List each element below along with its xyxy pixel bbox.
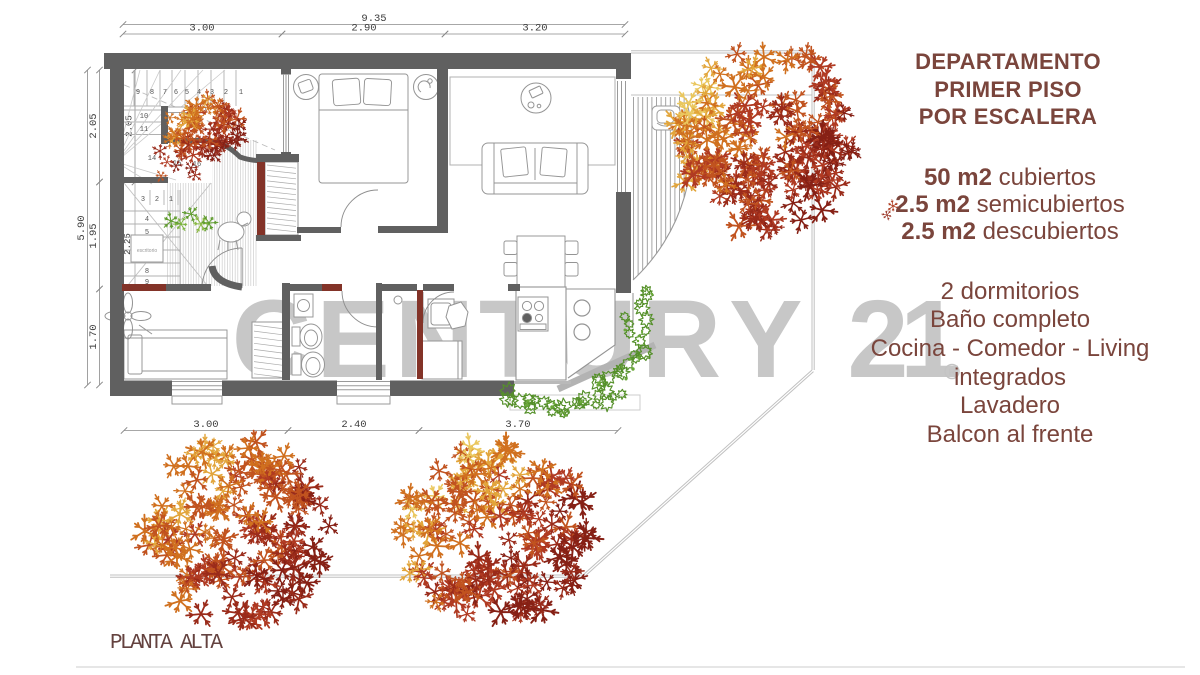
svg-text:4: 4	[197, 89, 201, 97]
svg-text:3.00: 3.00	[189, 23, 214, 35]
svg-text:5.90: 5.90	[76, 215, 88, 240]
svg-text:3.00: 3.00	[193, 419, 218, 431]
svg-text:3: 3	[141, 196, 145, 204]
svg-text:10: 10	[140, 113, 148, 121]
svg-text:7: 7	[163, 89, 167, 97]
svg-text:1: 1	[169, 196, 173, 204]
svg-text:2: 2	[224, 89, 228, 97]
svg-text:4: 4	[145, 216, 149, 224]
svg-text:2: 2	[155, 196, 159, 204]
svg-text:9: 9	[136, 89, 140, 97]
svg-text:2.05: 2.05	[88, 113, 100, 138]
svg-text:2.40: 2.40	[341, 419, 366, 431]
svg-text:PLANTA ALTA: PLANTA ALTA	[110, 632, 223, 655]
svg-text:6: 6	[174, 89, 178, 97]
svg-text:5: 5	[185, 89, 189, 97]
svg-text:8: 8	[145, 268, 149, 276]
svg-text:escritorio: escritorio	[137, 248, 158, 254]
svg-text:3.70: 3.70	[505, 419, 530, 431]
svg-text:1.70: 1.70	[88, 324, 100, 349]
svg-text:8: 8	[150, 89, 154, 97]
svg-text:Y: Y	[729, 278, 802, 401]
svg-text:2.90: 2.90	[351, 23, 376, 35]
svg-text:1: 1	[239, 89, 243, 97]
svg-text:1.95: 1.95	[88, 223, 100, 248]
svg-text:R: R	[642, 278, 721, 401]
svg-text:3.20: 3.20	[522, 23, 547, 35]
svg-text:14: 14	[148, 155, 156, 163]
svg-text:11: 11	[140, 126, 148, 134]
